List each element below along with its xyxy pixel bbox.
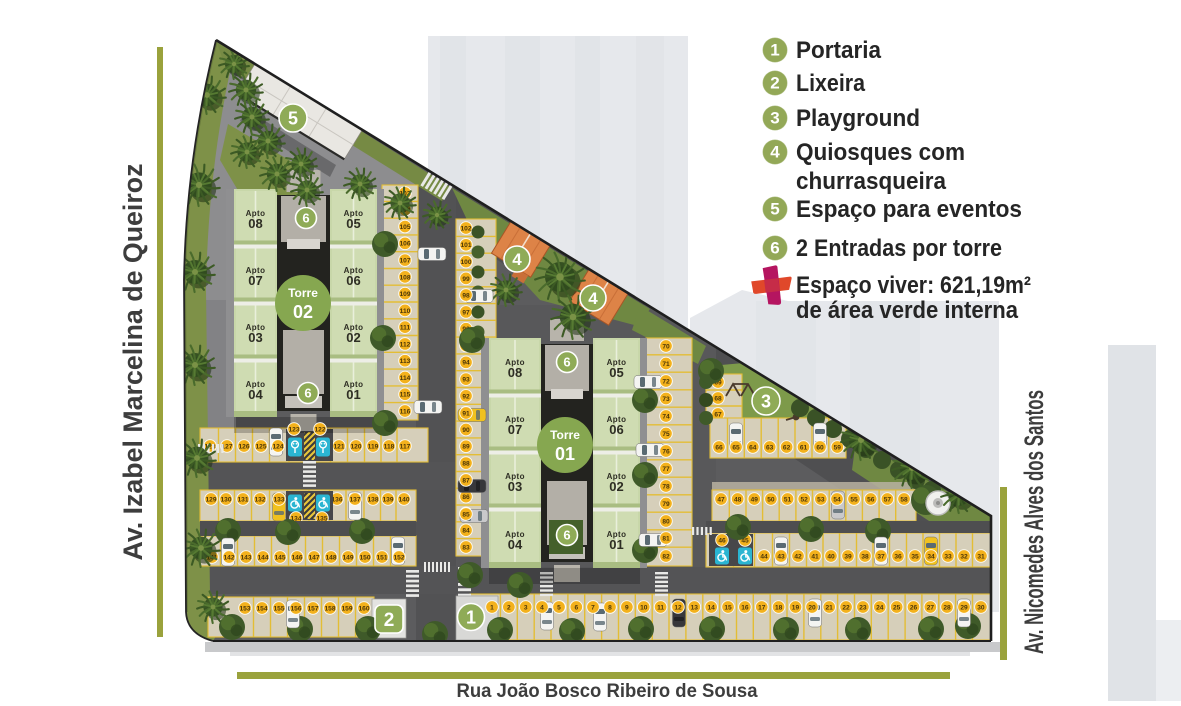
svg-text:4: 4: [588, 289, 598, 308]
svg-text:48: 48: [734, 496, 742, 503]
svg-text:106: 106: [399, 241, 410, 248]
svg-text:105: 105: [399, 224, 410, 231]
svg-text:38: 38: [861, 553, 869, 560]
svg-text:3: 3: [524, 604, 528, 611]
svg-text:83: 83: [462, 544, 470, 551]
svg-text:136: 136: [331, 496, 342, 503]
svg-text:152: 152: [393, 554, 404, 561]
svg-text:153: 153: [239, 605, 250, 612]
svg-text:36: 36: [894, 553, 902, 560]
svg-text:124: 124: [272, 443, 283, 450]
svg-text:Portaria: Portaria: [796, 37, 882, 64]
svg-text:Torre: Torre: [288, 286, 318, 300]
svg-text:133: 133: [273, 496, 284, 503]
svg-text:148: 148: [325, 554, 336, 561]
svg-text:22: 22: [842, 604, 850, 611]
svg-text:churrasqueira: churrasqueira: [796, 168, 947, 195]
svg-text:29: 29: [960, 604, 968, 611]
svg-text:de área verde interna: de área verde interna: [796, 297, 1019, 324]
svg-text:140: 140: [398, 496, 409, 503]
svg-text:113: 113: [400, 358, 411, 365]
svg-text:16: 16: [741, 604, 749, 611]
svg-text:5: 5: [288, 108, 298, 128]
svg-text:04: 04: [508, 537, 523, 552]
svg-text:81: 81: [662, 535, 670, 542]
svg-text:147: 147: [308, 554, 319, 561]
svg-text:62: 62: [783, 444, 791, 451]
svg-text:73: 73: [662, 396, 670, 403]
svg-text:89: 89: [462, 444, 470, 451]
svg-text:3: 3: [761, 391, 771, 411]
svg-text:35: 35: [911, 553, 919, 560]
svg-text:5: 5: [770, 200, 779, 219]
svg-text:06: 06: [346, 273, 360, 288]
svg-text:145: 145: [274, 554, 285, 561]
svg-text:155: 155: [273, 605, 284, 612]
svg-text:75: 75: [662, 431, 670, 438]
svg-text:61: 61: [800, 444, 808, 451]
svg-text:2 Entradas por torre: 2 Entradas por torre: [796, 235, 1002, 262]
svg-text:108: 108: [399, 274, 410, 281]
svg-text:80: 80: [662, 518, 670, 525]
svg-text:42: 42: [794, 553, 802, 560]
svg-text:138: 138: [367, 496, 378, 503]
svg-text:20: 20: [808, 604, 816, 611]
svg-text:156: 156: [290, 605, 301, 612]
svg-text:131: 131: [237, 496, 248, 503]
svg-text:85: 85: [462, 511, 470, 518]
svg-text:77: 77: [662, 466, 670, 473]
svg-text:123: 123: [288, 426, 299, 433]
svg-text:66: 66: [715, 444, 723, 451]
svg-text:03: 03: [508, 479, 522, 494]
svg-text:154: 154: [256, 605, 267, 612]
svg-text:43: 43: [777, 553, 785, 560]
svg-text:119: 119: [368, 443, 379, 450]
svg-text:26: 26: [910, 604, 918, 611]
svg-text:4: 4: [512, 250, 522, 269]
svg-text:57: 57: [884, 496, 892, 503]
svg-text:2: 2: [384, 610, 395, 631]
svg-text:59: 59: [834, 444, 842, 451]
svg-text:129: 129: [205, 496, 216, 503]
svg-text:01: 01: [346, 387, 360, 402]
svg-text:28: 28: [943, 604, 951, 611]
svg-text:68: 68: [714, 395, 722, 402]
svg-text:30: 30: [977, 604, 985, 611]
svg-text:6: 6: [563, 355, 570, 370]
svg-text:76: 76: [662, 448, 670, 455]
svg-text:115: 115: [400, 392, 411, 399]
svg-text:05: 05: [346, 216, 360, 231]
svg-text:08: 08: [508, 365, 522, 380]
svg-text:102: 102: [460, 225, 471, 232]
svg-text:50: 50: [767, 496, 775, 503]
svg-text:117: 117: [400, 443, 411, 450]
svg-text:90: 90: [462, 427, 470, 434]
svg-text:125: 125: [255, 443, 266, 450]
svg-text:107: 107: [399, 257, 410, 264]
svg-text:24: 24: [876, 604, 884, 611]
svg-text:19: 19: [792, 604, 800, 611]
svg-text:94: 94: [462, 360, 470, 367]
svg-text:02: 02: [609, 479, 623, 494]
svg-text:60: 60: [816, 444, 824, 451]
svg-text:6: 6: [563, 528, 570, 543]
svg-text:39: 39: [844, 553, 852, 560]
svg-text:109: 109: [399, 291, 410, 298]
svg-text:Espaço para eventos: Espaço para eventos: [796, 196, 1022, 223]
svg-text:01: 01: [609, 537, 623, 552]
svg-text:31: 31: [977, 553, 985, 560]
svg-text:110: 110: [400, 308, 411, 315]
svg-text:97: 97: [462, 309, 470, 316]
svg-text:130: 130: [220, 496, 231, 503]
svg-text:4: 4: [540, 604, 544, 611]
svg-text:132: 132: [254, 496, 265, 503]
svg-text:Espaço viver: 621,19m²: Espaço viver: 621,19m²: [796, 272, 1031, 299]
svg-text:67: 67: [714, 411, 722, 418]
svg-text:25: 25: [893, 604, 901, 611]
svg-text:1: 1: [490, 604, 494, 611]
svg-text:160: 160: [358, 605, 369, 612]
svg-text:07: 07: [508, 422, 522, 437]
svg-text:32: 32: [960, 553, 968, 560]
svg-text:150: 150: [359, 554, 370, 561]
svg-text:8: 8: [608, 604, 612, 611]
svg-text:40: 40: [827, 553, 835, 560]
svg-text:Quiosques com: Quiosques com: [796, 139, 965, 166]
svg-text:87: 87: [462, 477, 470, 484]
svg-text:Torre: Torre: [550, 428, 580, 442]
svg-text:41: 41: [811, 553, 819, 560]
svg-text:Playground: Playground: [796, 105, 920, 132]
svg-text:03: 03: [248, 330, 262, 345]
svg-text:44: 44: [760, 553, 768, 560]
svg-text:04: 04: [248, 387, 263, 402]
svg-text:52: 52: [801, 496, 809, 503]
svg-text:86: 86: [462, 494, 470, 501]
svg-text:6: 6: [302, 211, 309, 226]
svg-text:13: 13: [691, 604, 699, 611]
svg-text:Av. Izabel Marcelina de Queiro: Av. Izabel Marcelina de Queiroz: [118, 164, 148, 561]
svg-text:18: 18: [775, 604, 783, 611]
svg-text:54: 54: [833, 496, 841, 503]
svg-text:65: 65: [732, 444, 740, 451]
svg-text:137: 137: [349, 496, 360, 503]
svg-text:47: 47: [717, 496, 725, 503]
svg-text:63: 63: [766, 444, 774, 451]
svg-text:74: 74: [662, 413, 670, 420]
svg-text:5: 5: [557, 604, 561, 611]
svg-text:2: 2: [507, 604, 511, 611]
svg-text:02: 02: [293, 302, 313, 322]
svg-text:6: 6: [770, 239, 779, 258]
svg-text:157: 157: [307, 605, 318, 612]
svg-text:146: 146: [291, 554, 302, 561]
svg-text:6: 6: [304, 386, 311, 401]
svg-text:49: 49: [751, 496, 759, 503]
svg-text:34: 34: [927, 553, 935, 560]
svg-text:70: 70: [662, 343, 670, 350]
svg-text:118: 118: [384, 443, 395, 450]
svg-text:02: 02: [346, 330, 360, 345]
svg-text:149: 149: [342, 554, 353, 561]
svg-text:27: 27: [927, 604, 935, 611]
svg-text:7: 7: [591, 604, 595, 611]
svg-text:142: 142: [223, 554, 234, 561]
svg-text:78: 78: [662, 483, 670, 490]
svg-text:116: 116: [400, 408, 411, 415]
svg-text:11: 11: [657, 604, 664, 611]
svg-text:10: 10: [640, 604, 648, 611]
svg-text:15: 15: [724, 604, 732, 611]
svg-text:91: 91: [462, 410, 470, 417]
svg-text:46: 46: [718, 537, 726, 544]
svg-text:84: 84: [462, 528, 470, 535]
svg-text:08: 08: [248, 216, 262, 231]
svg-text:99: 99: [462, 276, 470, 283]
svg-text:12: 12: [674, 604, 682, 611]
svg-text:93: 93: [462, 377, 470, 384]
svg-text:Lixeira: Lixeira: [796, 70, 866, 97]
svg-text:122: 122: [314, 426, 325, 433]
svg-text:126: 126: [238, 443, 249, 450]
svg-text:88: 88: [462, 460, 470, 467]
svg-text:72: 72: [662, 378, 670, 385]
svg-text:120: 120: [350, 443, 361, 450]
svg-text:4: 4: [770, 143, 780, 162]
svg-text:114: 114: [400, 375, 411, 382]
svg-text:143: 143: [240, 554, 251, 561]
svg-text:111: 111: [400, 325, 411, 332]
svg-text:58: 58: [900, 496, 908, 503]
svg-text:55: 55: [850, 496, 858, 503]
svg-text:79: 79: [662, 501, 670, 508]
svg-text:37: 37: [877, 553, 885, 560]
svg-text:21: 21: [826, 604, 834, 611]
svg-text:33: 33: [944, 553, 952, 560]
svg-text:6: 6: [574, 604, 578, 611]
svg-text:17: 17: [758, 604, 766, 611]
svg-text:121: 121: [333, 443, 344, 450]
svg-text:Rua João Bosco Ribeiro de Sous: Rua João Bosco Ribeiro de Sousa: [457, 680, 758, 701]
svg-text:51: 51: [784, 496, 792, 503]
svg-text:07: 07: [248, 273, 262, 288]
svg-text:23: 23: [859, 604, 867, 611]
svg-text:112: 112: [400, 341, 411, 348]
svg-text:151: 151: [376, 554, 387, 561]
svg-text:53: 53: [817, 496, 825, 503]
svg-text:1: 1: [770, 41, 779, 60]
svg-text:01: 01: [555, 444, 575, 464]
svg-text:1: 1: [466, 607, 476, 627]
svg-text:9: 9: [625, 604, 629, 611]
svg-text:2: 2: [770, 74, 779, 93]
svg-text:139: 139: [382, 496, 393, 503]
svg-text:158: 158: [324, 605, 335, 612]
svg-text:56: 56: [867, 496, 875, 503]
svg-text:100: 100: [460, 259, 471, 266]
svg-text:98: 98: [462, 292, 470, 299]
svg-text:Av. Nicomedes Alves dos Santos: Av. Nicomedes Alves dos Santos: [1019, 390, 1049, 654]
svg-text:159: 159: [341, 605, 352, 612]
svg-text:144: 144: [257, 554, 268, 561]
svg-text:3: 3: [770, 109, 779, 128]
svg-text:64: 64: [749, 444, 757, 451]
svg-text:14: 14: [708, 604, 716, 611]
svg-text:101: 101: [460, 242, 471, 249]
svg-text:92: 92: [462, 393, 470, 400]
svg-text:82: 82: [662, 553, 670, 560]
svg-text:06: 06: [609, 422, 623, 437]
svg-text:05: 05: [609, 365, 623, 380]
svg-text:71: 71: [662, 361, 670, 368]
